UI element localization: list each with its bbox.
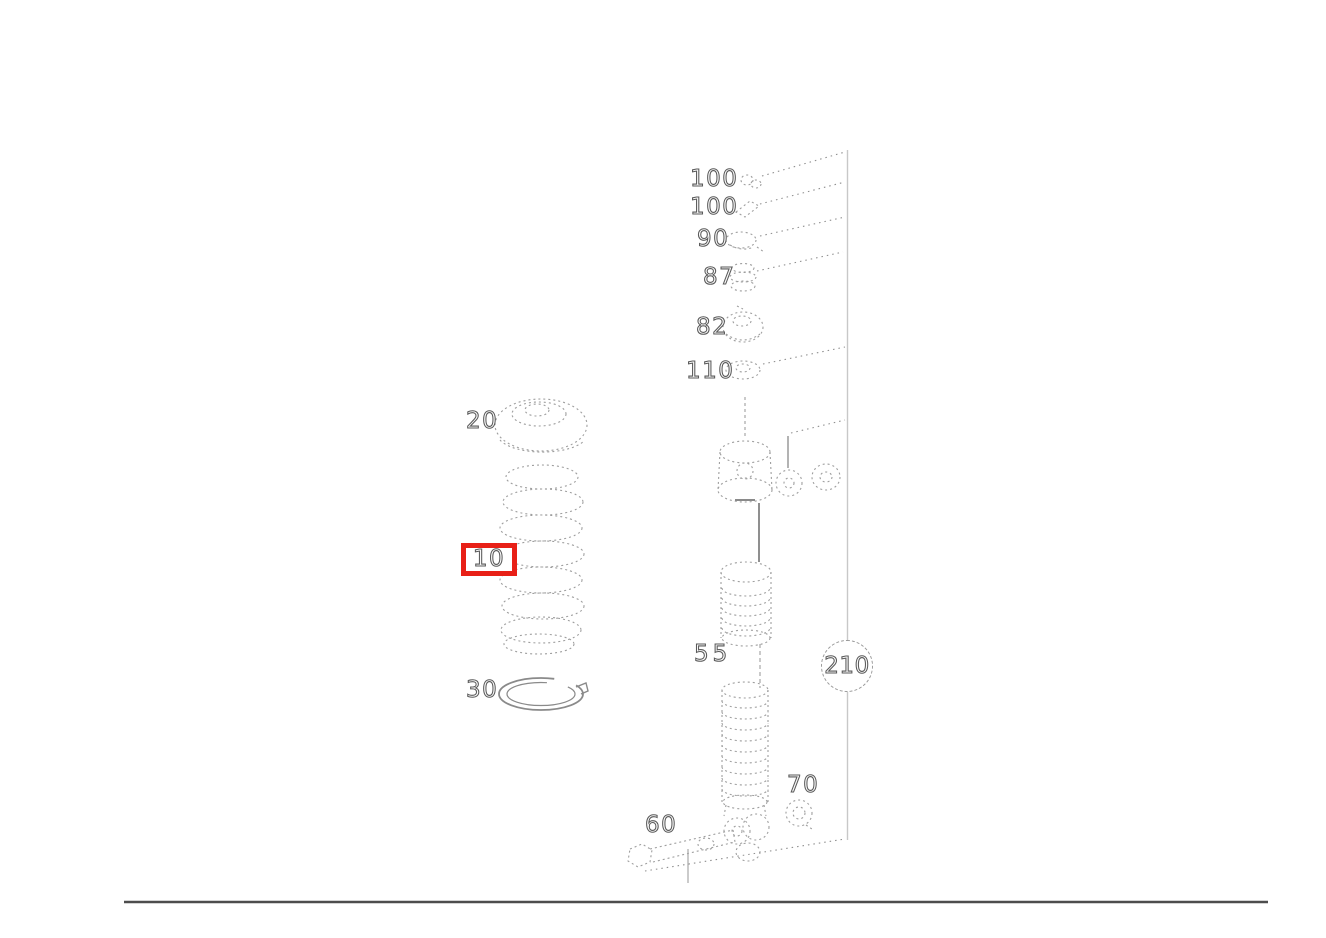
retaining-ring-drawing: [499, 678, 588, 710]
part-label-100-2[interactable]: 100: [690, 196, 738, 219]
part-label-10[interactable]: 10: [473, 548, 505, 571]
part-label-110[interactable]: 110: [686, 360, 734, 383]
diagram-line-art: [0, 0, 1326, 938]
dust-boot-drawing: [721, 562, 771, 646]
part-label-100-1[interactable]: 100: [690, 168, 738, 191]
nut-drawing: [786, 800, 812, 829]
part-90-plate-drawing: [726, 232, 764, 252]
part-label-87[interactable]: 87: [703, 266, 735, 289]
shock-absorber-drawing: [698, 397, 772, 861]
washers-drawing: [776, 436, 840, 496]
shock-body-drawing: [722, 682, 768, 809]
spring-seat-drawing: [495, 399, 587, 452]
part-label-20[interactable]: 20: [466, 410, 498, 433]
part-210-callout-circle[interactable]: 210: [821, 640, 873, 692]
part-label-55[interactable]: 55: [694, 643, 731, 666]
part-label-60[interactable]: 60: [645, 814, 677, 837]
part-label-70[interactable]: 70: [787, 774, 819, 797]
eyelet-bushing-drawing: [698, 805, 769, 861]
part-100a-clip-drawing: [741, 175, 761, 188]
part-label-210[interactable]: 210: [824, 655, 869, 678]
part-100b-clip-drawing: [736, 201, 759, 217]
parts-diagram-page: 100 100 90 87 82 110 20 10 30 55 210 70 …: [0, 0, 1326, 938]
part-10-highlight-box[interactable]: 10: [461, 543, 517, 576]
upper-mount-drawing: [718, 441, 772, 502]
part-label-82[interactable]: 82: [696, 316, 728, 339]
part-label-90[interactable]: 90: [697, 228, 729, 251]
part-label-30[interactable]: 30: [466, 679, 498, 702]
part-82-mount-drawing: [723, 306, 763, 342]
